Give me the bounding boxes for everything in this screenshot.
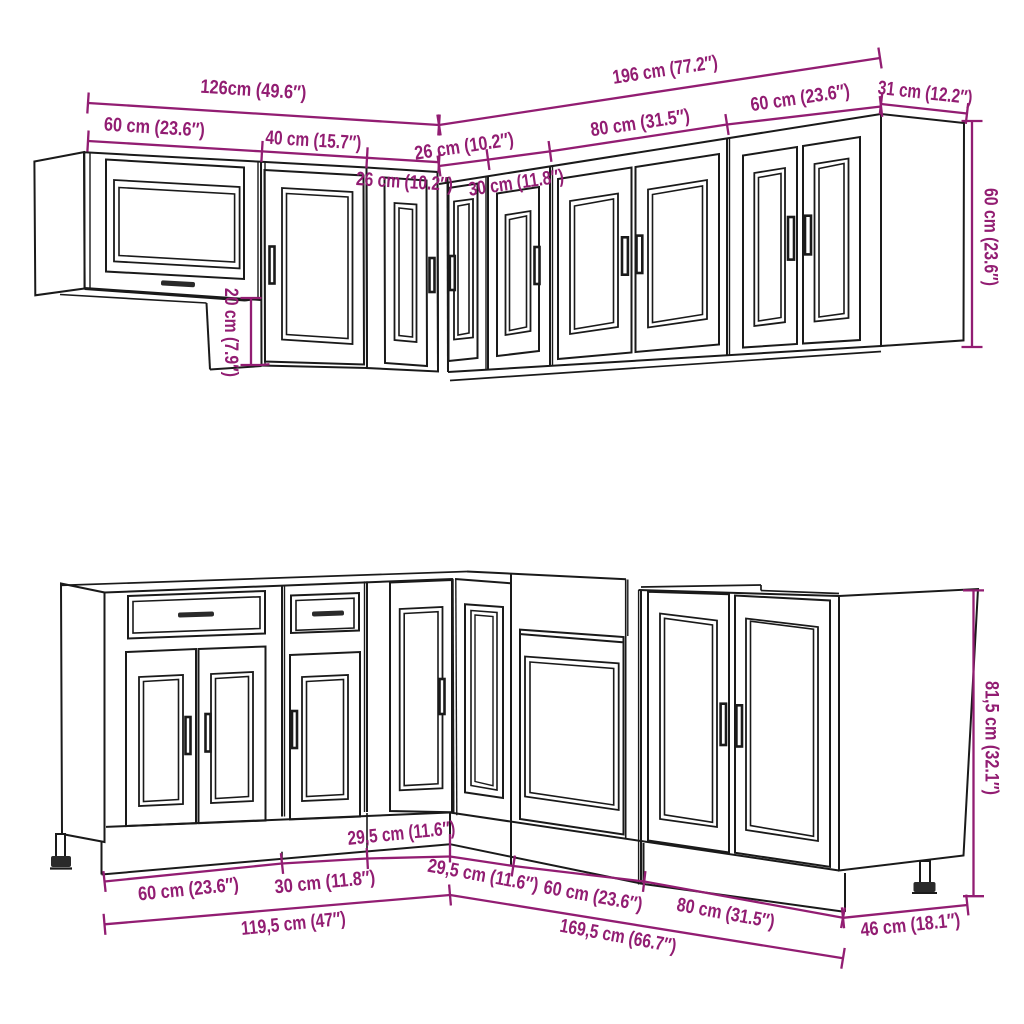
svg-text:20 cm (7.9″): 20 cm (7.9″) — [220, 288, 242, 377]
svg-text:60 cm (23.6″): 60 cm (23.6″) — [980, 188, 1002, 286]
svg-text:81,5 cm (32.1″): 81,5 cm (32.1″) — [981, 681, 1003, 795]
